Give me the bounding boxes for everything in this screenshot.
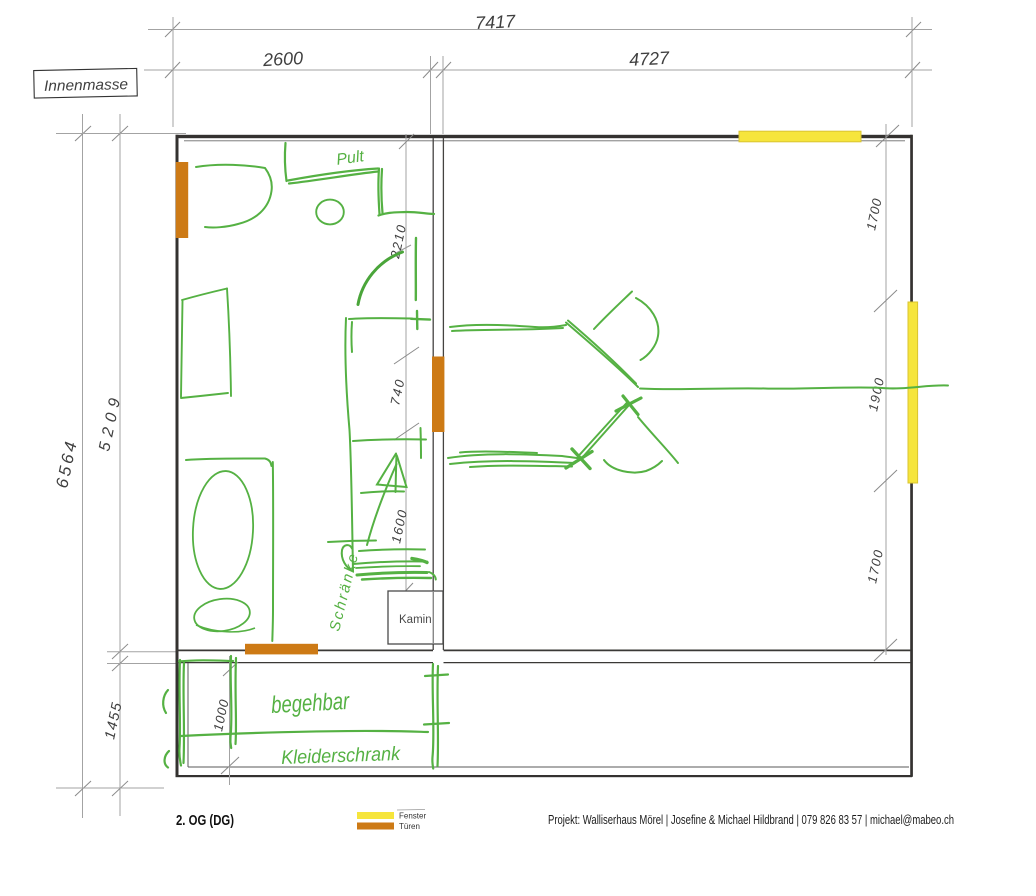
- svg-text:Fenster: Fenster: [399, 812, 426, 821]
- svg-text:4727: 4727: [629, 48, 671, 70]
- svg-text:2600: 2600: [262, 48, 304, 70]
- svg-text:Projekt: Walliserhaus Mörel |: Projekt: Walliserhaus Mörel | Josefine &…: [548, 812, 954, 827]
- svg-text:Kleiderschrank: Kleiderschrank: [281, 743, 402, 769]
- svg-text:Innenmasse: Innenmasse: [44, 76, 128, 95]
- svg-text:begehbar: begehbar: [271, 688, 351, 719]
- svg-text:Türen: Türen: [399, 822, 420, 831]
- svg-text:7417: 7417: [475, 11, 517, 33]
- svg-text:Kamin: Kamin: [399, 614, 432, 626]
- svg-text:2. OG (DG): 2. OG (DG): [176, 813, 234, 829]
